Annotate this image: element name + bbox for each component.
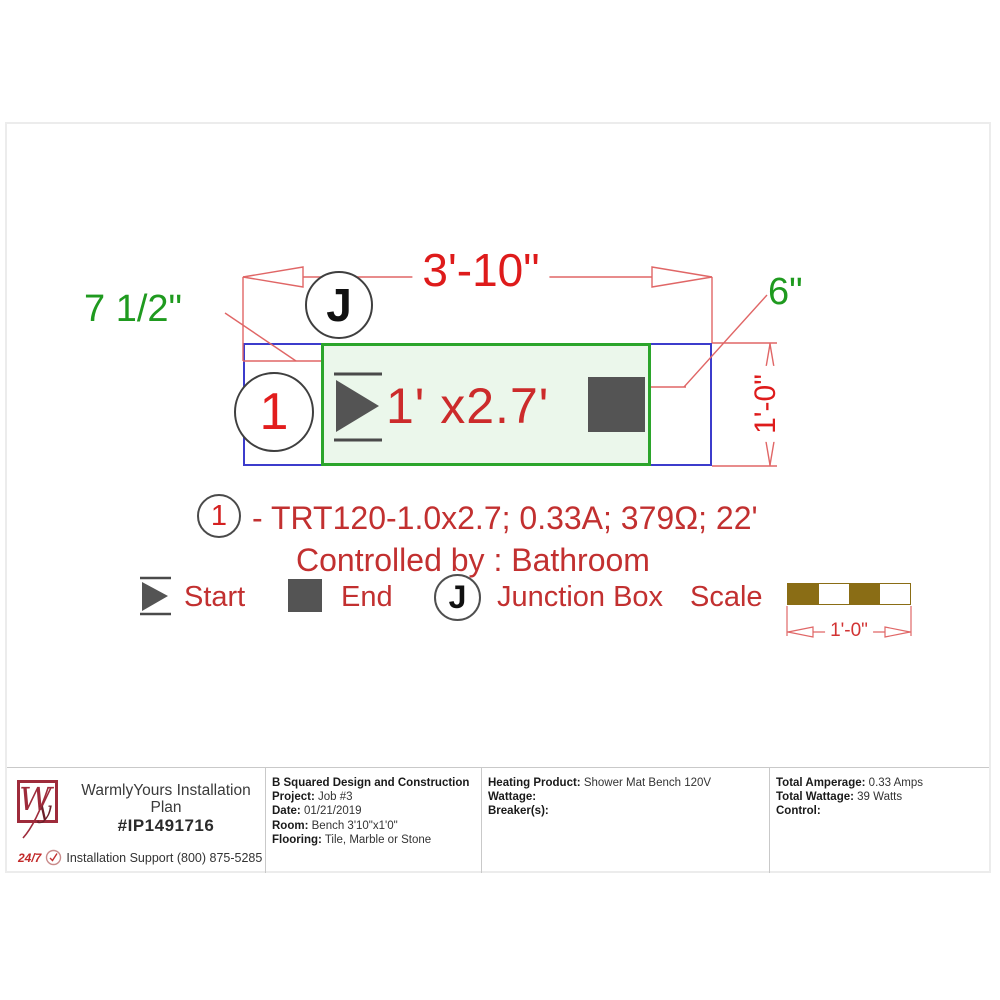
right-offset-label: 6" [768, 271, 803, 314]
plan-title-line2: Plan [78, 800, 254, 817]
project-value: Job #3 [318, 791, 353, 803]
end-label: End [341, 581, 393, 614]
scale-ruler [787, 583, 911, 605]
company-name: B Squared Design and Construction [272, 777, 469, 789]
date-value: 01/21/2019 [304, 805, 362, 817]
mat-number-marker: 1 [234, 372, 314, 452]
ruler-segment [788, 584, 819, 604]
control-label: Control: [776, 805, 821, 817]
spec-description: - TRT120-1.0x2.7; 0.33A; 379Ω; 22' [252, 500, 758, 537]
start-label: Start [184, 581, 245, 614]
ruler-segment [849, 584, 880, 604]
junction-legend-letter: J [449, 579, 467, 616]
date-label: Date: [272, 805, 301, 817]
spec-number-marker: 1 [197, 494, 241, 538]
footer-company-column: B Squared Design and Construction Projec… [272, 776, 474, 847]
total-amperage-label: Total Amperage: [776, 777, 865, 789]
mat-size-label: 1' x2.7' [386, 377, 549, 435]
junction-box-icon-legend: J [434, 574, 481, 621]
spec-number: 1 [211, 500, 227, 533]
start-icon-legend [138, 575, 174, 617]
left-offset-label: 7 1/2" [84, 288, 182, 331]
junction-box-marker: J [305, 271, 373, 339]
project-label: Project: [272, 791, 315, 803]
footer-totals-column: Total Amperage: 0.33 Amps Total Wattage:… [776, 776, 986, 819]
footer-column-divider [265, 768, 266, 873]
end-icon [588, 377, 645, 432]
scale-label: Scale [690, 581, 763, 614]
mat-number: 1 [260, 382, 289, 442]
ruler-segment [819, 584, 850, 604]
end-icon-legend [288, 579, 322, 612]
total-amperage-value: 0.33 Amps [869, 777, 923, 789]
support-badge: 24/7 [18, 851, 41, 865]
clock-check-icon [45, 849, 62, 866]
flooring-label: Flooring: [272, 834, 322, 846]
footer-column-divider [481, 768, 482, 873]
warmlyyours-logo: W y [14, 776, 64, 842]
footer-divider-top [7, 767, 989, 768]
heating-product-value: Shower Mat Bench 120V [584, 777, 711, 789]
footer-column-divider [769, 768, 770, 873]
total-wattage-label: Total Wattage: [776, 791, 854, 803]
width-dimension-label: 3'-10" [412, 243, 549, 297]
total-wattage-value: 39 Watts [857, 791, 902, 803]
heating-product-label: Heating Product: [488, 777, 581, 789]
plan-title-line1: WarmlyYours Installation [78, 783, 254, 800]
plan-title: WarmlyYours Installation Plan #IP1491716 [78, 783, 254, 835]
room-label: Room: [272, 820, 308, 832]
flooring-value: Tile, Marble or Stone [325, 834, 431, 846]
room-value: Bench 3'10"x1'0" [312, 820, 398, 832]
plan-number: #IP1491716 [78, 818, 254, 835]
plan-sheet [5, 122, 991, 873]
wattage-label: Wattage: [488, 791, 536, 803]
junction-box-letter: J [326, 278, 352, 332]
scale-dimension-label: 1'-0" [825, 620, 873, 642]
support-row: 24/7 Installation Support (800) 875-5285 [18, 849, 262, 866]
support-phone-text: Installation Support (800) 875-5285 [66, 851, 262, 865]
junction-box-label: Junction Box [497, 581, 663, 614]
height-dimension-label: 1'-0" [749, 366, 783, 442]
ruler-segment [880, 584, 911, 604]
start-icon [331, 371, 385, 443]
controlled-by-text: Controlled by : Bathroom [296, 542, 650, 579]
breakers-label: Breaker(s): [488, 805, 549, 817]
footer-product-column: Heating Product: Shower Mat Bench 120V W… [488, 776, 762, 819]
